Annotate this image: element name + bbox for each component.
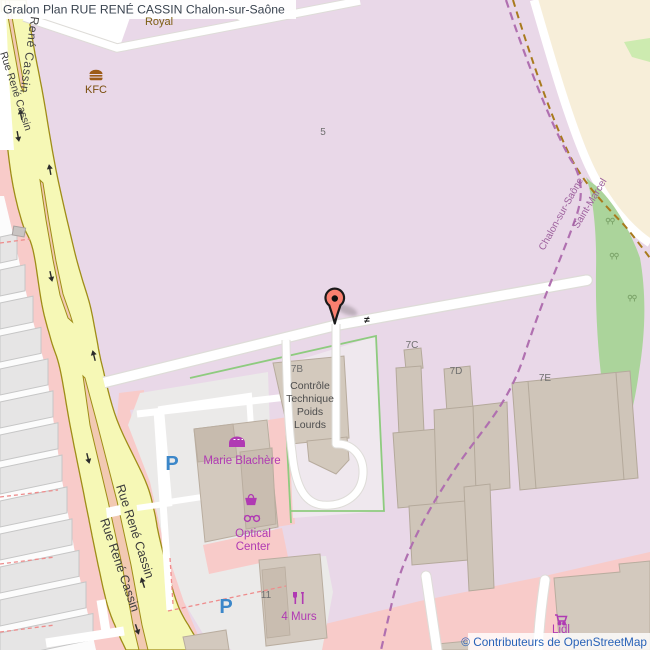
svg-text:P: P [219,596,232,618]
svg-text:7C: 7C [406,340,419,351]
svg-text:Gralon Plan RUE RENÉ CASSIN Ch: Gralon Plan RUE RENÉ CASSIN Chalon-sur-S… [3,2,285,17]
svg-text:7D: 7D [450,366,463,377]
svg-text:P: P [165,453,178,475]
svg-text:Poids: Poids [297,406,323,418]
svg-text:Contrôle: Contrôle [290,380,330,392]
svg-text:Royal: Royal [145,16,173,28]
svg-text:KFC: KFC [85,84,107,96]
svg-text:≠: ≠ [364,315,370,326]
svg-text:Center: Center [236,541,271,553]
svg-text:© Contributeurs de OpenStreetM: © Contributeurs de OpenStreetMap [461,635,647,649]
svg-text:5: 5 [320,127,326,138]
svg-text:7B: 7B [291,364,304,375]
svg-text:7E: 7E [539,373,552,384]
svg-text:Optical: Optical [235,528,271,540]
svg-text:4 Murs: 4 Murs [281,611,316,623]
svg-text:11: 11 [261,590,272,601]
svg-text:Technique: Technique [286,393,334,405]
svg-text:Marie Blachère: Marie Blachère [203,455,280,467]
svg-text:Lourds: Lourds [294,419,326,431]
